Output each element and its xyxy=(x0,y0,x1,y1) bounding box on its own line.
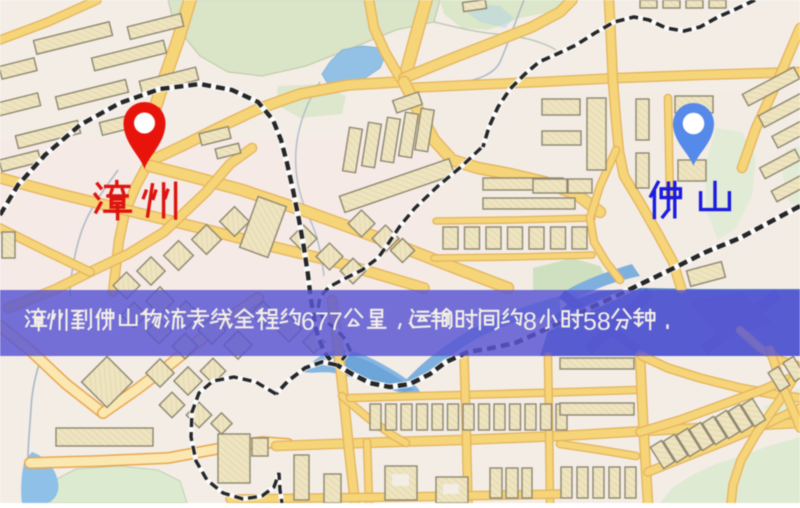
svg-text:58: 58 xyxy=(583,308,611,336)
svg-text:677: 677 xyxy=(301,308,343,336)
svg-text:8: 8 xyxy=(523,308,537,336)
